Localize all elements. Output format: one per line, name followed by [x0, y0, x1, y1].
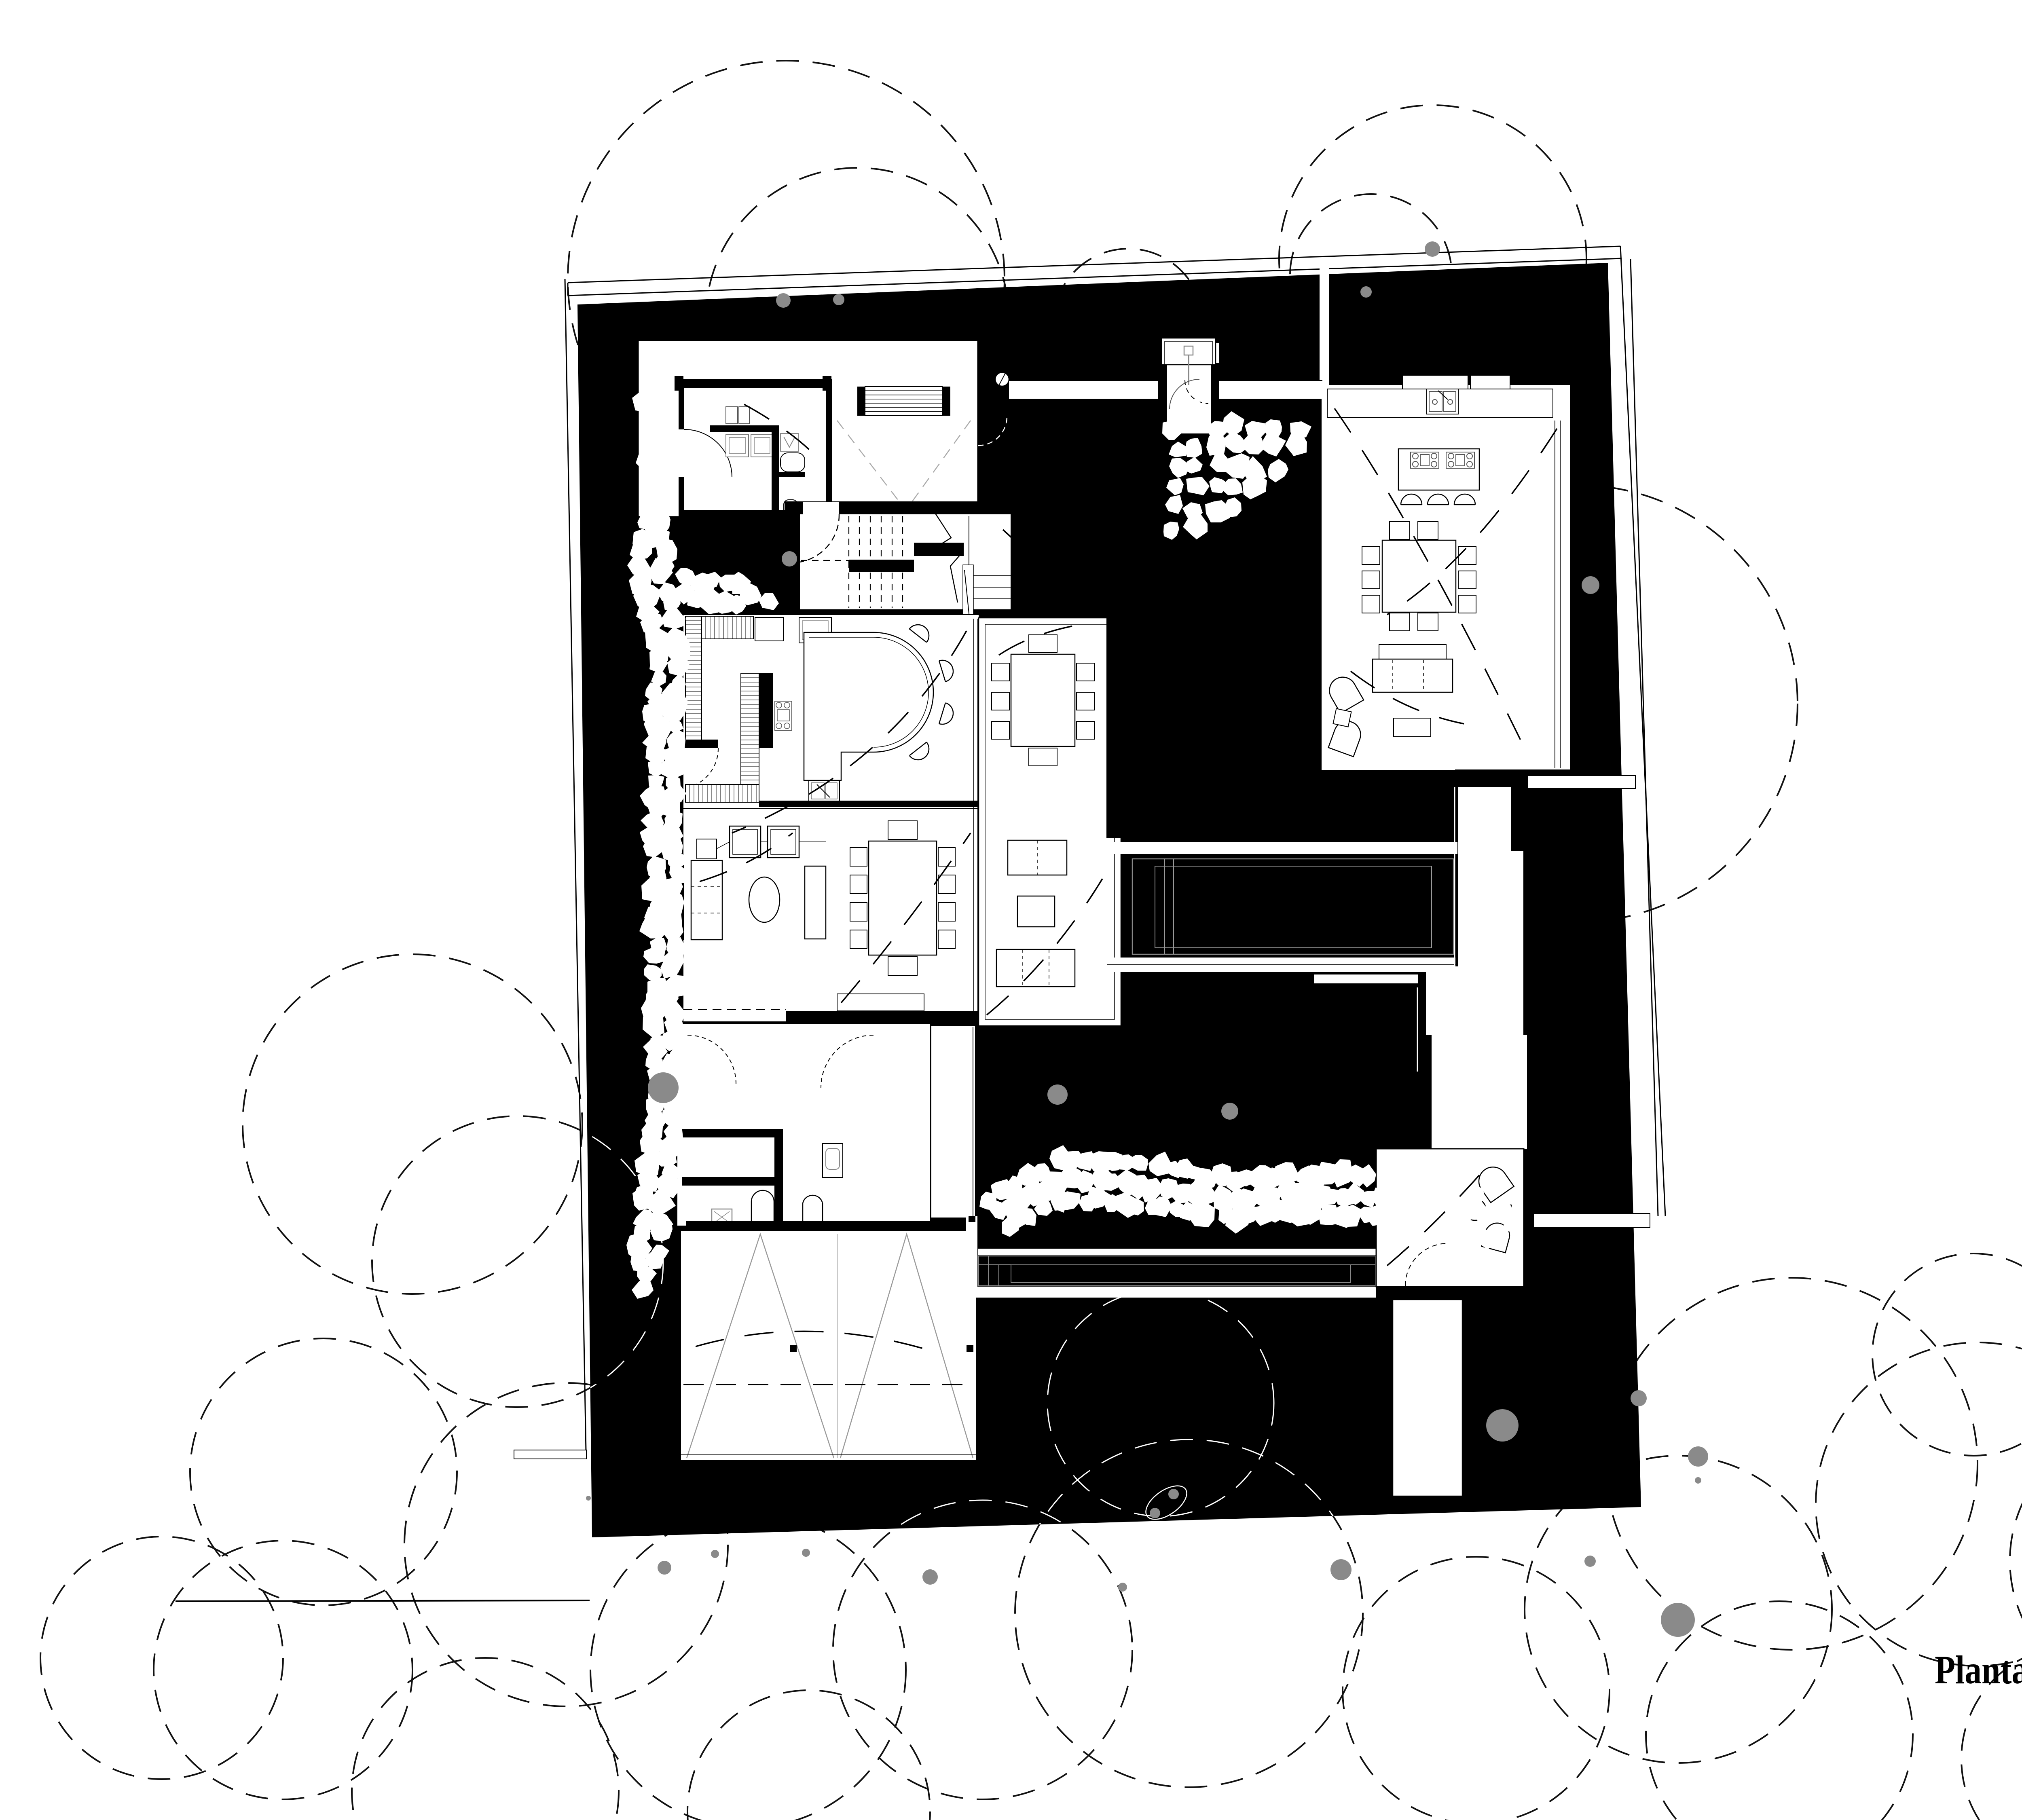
svg-text:Planta Baja: Planta Baja — [1935, 1647, 2022, 1692]
